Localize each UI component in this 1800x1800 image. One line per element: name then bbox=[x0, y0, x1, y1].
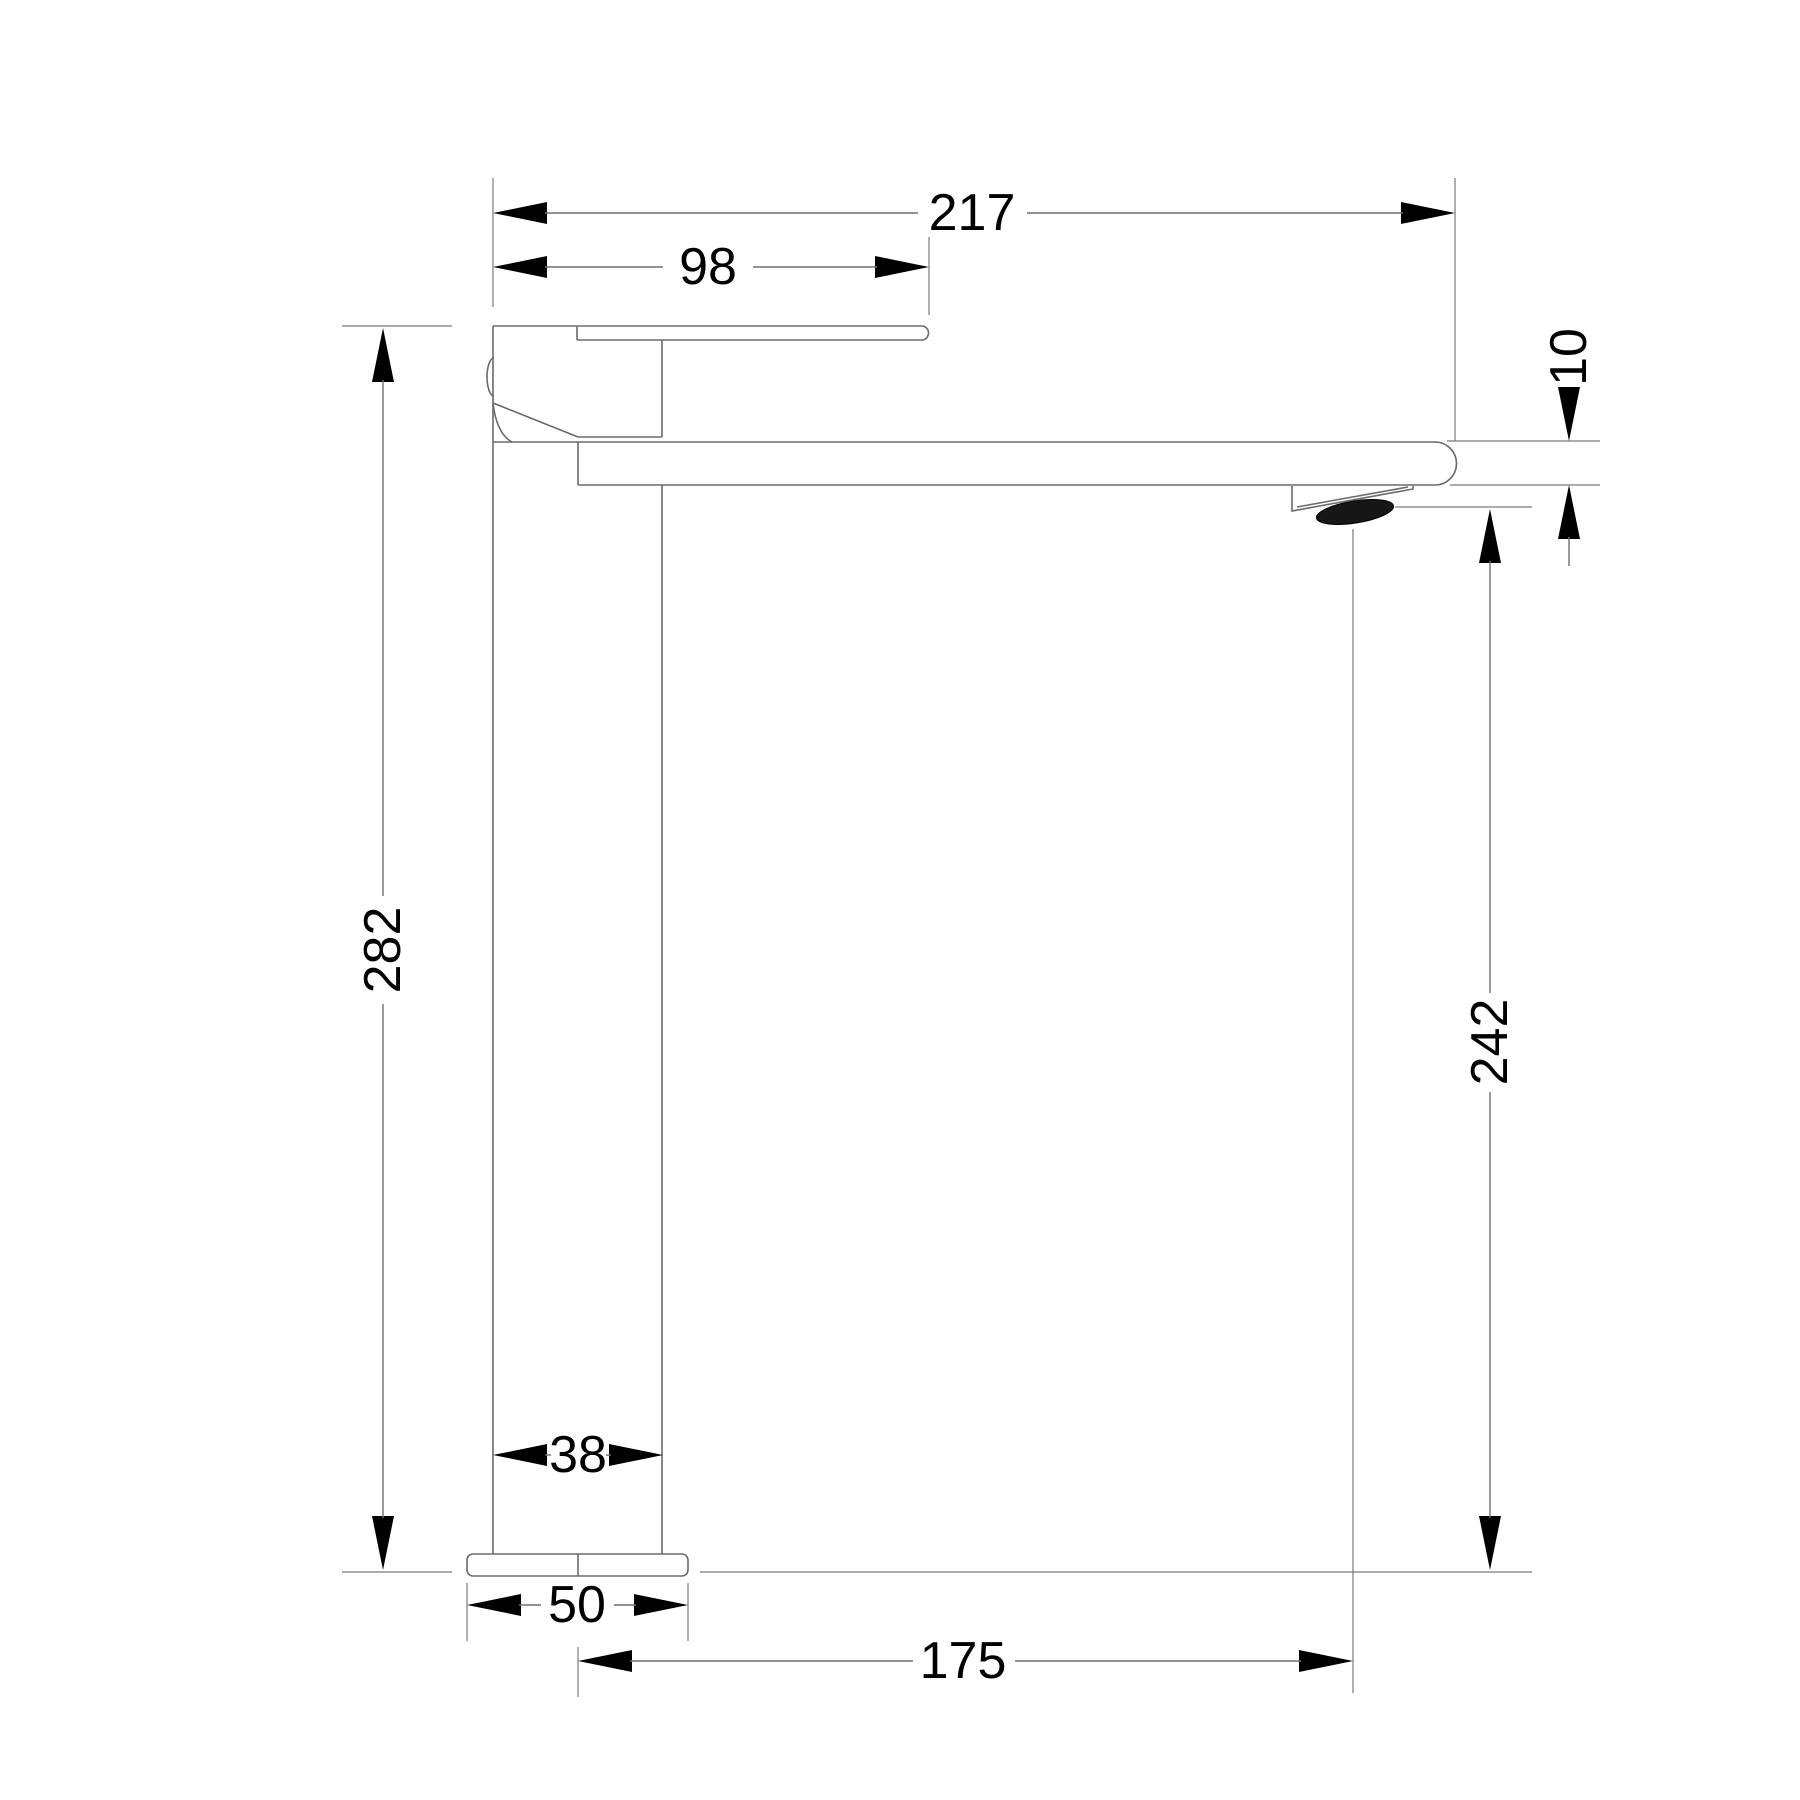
arrowhead-left bbox=[493, 256, 547, 278]
head-bottom-slant bbox=[493, 403, 578, 437]
dim-overall-height-label: 282 bbox=[354, 907, 412, 994]
dim-handle-length-label: 98 bbox=[679, 238, 737, 296]
dim-body-width: 38 bbox=[493, 1426, 663, 1484]
dim-spout-outlet-height: 242 bbox=[700, 507, 1532, 1572]
dim-body-width-label: 38 bbox=[549, 1426, 607, 1484]
aerator bbox=[1292, 486, 1413, 529]
arrowhead-right bbox=[1401, 202, 1455, 224]
arrowhead-up bbox=[1558, 485, 1580, 539]
arrowhead-right bbox=[875, 256, 929, 278]
dim-spout-outlet-height-label: 242 bbox=[1461, 999, 1519, 1086]
arrowhead-left bbox=[493, 1444, 547, 1466]
faucet-outline bbox=[467, 326, 1457, 1576]
dim-overall-width: 217 bbox=[493, 178, 1455, 441]
dim-spout-thickness: 10 bbox=[1447, 328, 1600, 566]
dim-spout-thickness-label: 10 bbox=[1540, 328, 1598, 386]
dim-overall-width-label: 217 bbox=[929, 184, 1016, 242]
dim-base-width: 50 bbox=[467, 1576, 688, 1641]
arrowhead-right bbox=[609, 1444, 663, 1466]
dim-overall-height: 282 bbox=[342, 326, 452, 1572]
technical-drawing-page: 217 98 10 282 242 bbox=[0, 0, 1800, 1800]
arrowhead-down bbox=[1479, 1516, 1501, 1570]
arrowhead-up bbox=[1479, 509, 1501, 563]
dim-spout-reach-label: 175 bbox=[920, 1632, 1007, 1690]
arrowhead-up bbox=[372, 328, 394, 382]
dim-base-width-label: 50 bbox=[548, 1576, 606, 1634]
arrowhead-right bbox=[1299, 1650, 1353, 1672]
arrowhead-left bbox=[493, 202, 547, 224]
arrowhead-left bbox=[467, 1594, 521, 1616]
arrowhead-right bbox=[634, 1594, 688, 1616]
dim-handle-length: 98 bbox=[493, 237, 929, 315]
arrowhead-down bbox=[372, 1516, 394, 1570]
arrowhead-down bbox=[1558, 387, 1580, 441]
spout-rounded-tip bbox=[1435, 442, 1457, 485]
handle-lever bbox=[577, 326, 929, 340]
tap-dimension-drawing: 217 98 10 282 242 bbox=[0, 0, 1800, 1800]
dim-spout-reach: 175 bbox=[578, 529, 1353, 1697]
arrowhead-left bbox=[578, 1650, 632, 1672]
